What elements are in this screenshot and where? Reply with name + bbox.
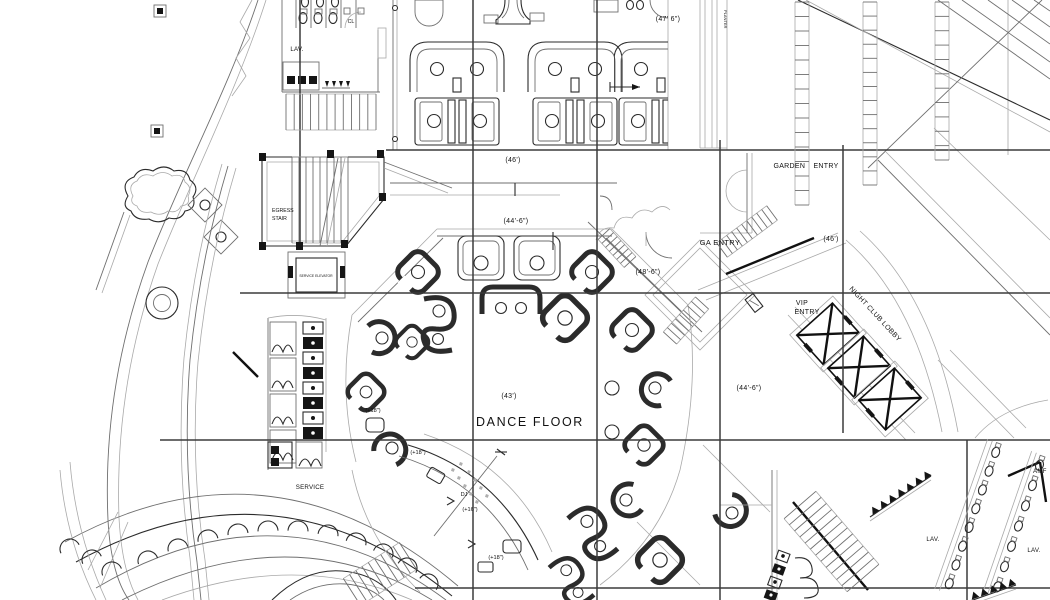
corridor-wall xyxy=(390,183,617,210)
lower-booth-area xyxy=(548,445,770,600)
planter-strip xyxy=(700,0,727,150)
label-service: SERVICE xyxy=(296,484,324,491)
left-booth-chain xyxy=(341,322,412,469)
toilet-fixture xyxy=(999,556,1011,572)
nightclub-floor-plan: LAV. CL (47' 6") PLANTER GARDEN ENTRY (4… xyxy=(0,0,1050,600)
label-plus18-left: (+18") xyxy=(365,408,380,414)
label-amf-clipped: AMF xyxy=(1033,468,1047,475)
label-dim-44-6-top: (44'-6") xyxy=(504,218,529,225)
right-restrooms xyxy=(938,350,1048,502)
label-plus16-dj: (+16") xyxy=(462,507,477,513)
toilet-fixture xyxy=(977,480,989,496)
floor-plan-canvas: LAV. CL (47' 6") PLANTER GARDEN ENTRY (4… xyxy=(0,0,1050,600)
label-closet: CL xyxy=(348,19,355,25)
service-bar xyxy=(268,315,326,470)
toilet-fixture xyxy=(951,555,963,571)
label-planter: PLANTER xyxy=(723,10,728,29)
label-egress-line2: STAIR xyxy=(272,216,287,222)
label-dim-44-6-low: (44'-6") xyxy=(737,385,762,392)
label-dj: DJ xyxy=(461,492,468,498)
label-lav-top: LAV. xyxy=(290,46,303,53)
label-plus18-lower: (+18") xyxy=(488,555,503,561)
label-dance-floor: DANCE FLOOR xyxy=(476,415,584,429)
site-boundary xyxy=(107,0,266,600)
toilet-fixture xyxy=(1027,475,1039,491)
label-lav-right-outer: LAV. xyxy=(1027,547,1040,554)
label-dim-47-6: (47' 6") xyxy=(656,16,681,23)
labels-layer: LAV. CL (47' 6") PLANTER GARDEN ENTRY (4… xyxy=(272,10,1047,561)
dj-stage-area xyxy=(352,434,552,592)
right-booth-chain xyxy=(604,306,675,518)
toilet-fixture xyxy=(990,442,1002,458)
generated-hatch-layer xyxy=(57,2,1046,600)
label-dim-46-right: (46') xyxy=(823,236,838,243)
label-dim-46-top: (46') xyxy=(505,157,520,164)
night-club-lobby xyxy=(788,231,958,440)
garden-entry-area xyxy=(700,153,752,233)
toilet-fixture xyxy=(984,461,996,477)
label-garden-entry: GARDEN ENTRY xyxy=(773,163,838,170)
label-egress-line1: EGRESS xyxy=(272,208,294,214)
toilet-fixture xyxy=(964,517,976,533)
label-vip-line2: ENTRY xyxy=(794,309,819,316)
dance-floor-booth-ring xyxy=(346,229,693,585)
toilet-fixture xyxy=(1006,536,1018,552)
label-lav-right-inner: LAV. xyxy=(926,536,939,543)
bottom-right-stair-area xyxy=(720,470,868,600)
label-service-elevator: SERVICE ELEVATOR xyxy=(299,274,333,278)
toilet-fixture xyxy=(1013,516,1025,532)
label-vip-line1: VIP xyxy=(796,300,808,307)
label-dim-48-6: (48'-6") xyxy=(636,269,661,276)
label-plus18-dj-top: (+18") xyxy=(410,450,425,456)
toilet-fixture xyxy=(970,498,982,514)
label-ga-entry: GA ENTRY xyxy=(700,238,740,247)
toilet-fixture xyxy=(1020,495,1032,511)
egress-stair-block xyxy=(262,157,452,298)
label-dim-43: (43') xyxy=(501,393,516,400)
